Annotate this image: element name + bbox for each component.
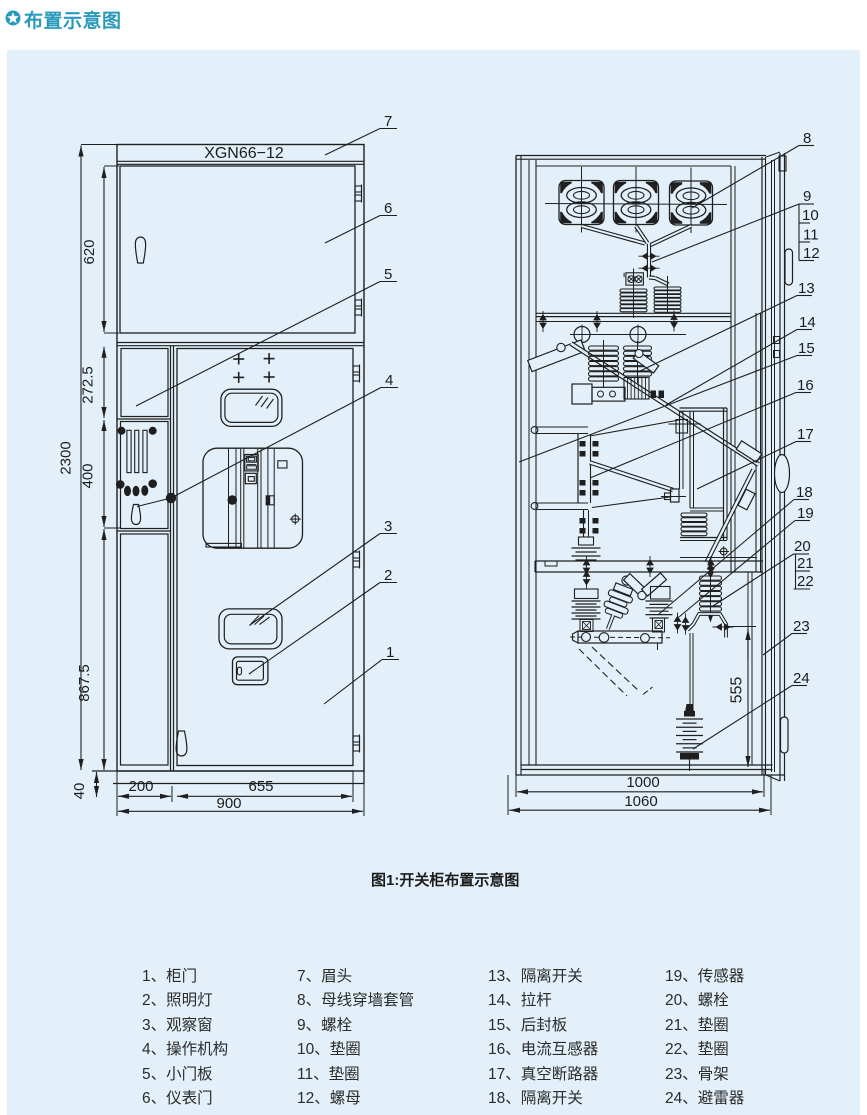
svg-text:16: 16 [797, 377, 814, 394]
svg-text:19: 19 [797, 505, 814, 522]
svg-text:13: 13 [798, 280, 815, 297]
svg-text:8: 8 [803, 130, 811, 147]
svg-text:10: 10 [802, 207, 819, 224]
svg-text:17: 17 [797, 426, 814, 443]
svg-text:655: 655 [248, 778, 273, 795]
svg-text:23: 23 [793, 618, 810, 635]
svg-text:200: 200 [128, 778, 153, 795]
svg-text:620: 620 [81, 239, 98, 264]
svg-text:2: 2 [384, 567, 392, 584]
svg-text:867.5: 867.5 [76, 664, 93, 702]
svg-text:20: 20 [794, 538, 811, 555]
svg-text:555: 555 [729, 677, 746, 704]
svg-text:11: 11 [803, 227, 819, 244]
svg-text:7: 7 [384, 113, 392, 130]
svg-text:1: 1 [386, 644, 394, 661]
svg-text:40: 40 [71, 783, 88, 800]
svg-text:400: 400 [80, 463, 97, 488]
svg-text:18: 18 [796, 484, 813, 501]
svg-text:1000: 1000 [626, 774, 659, 791]
svg-text:6: 6 [384, 200, 392, 217]
svg-text:4: 4 [385, 372, 393, 389]
svg-text:XGN66−12: XGN66−12 [204, 145, 284, 162]
svg-text:3: 3 [384, 518, 392, 535]
svg-text:22: 22 [797, 573, 814, 590]
svg-text:14: 14 [799, 314, 816, 331]
svg-text:2300: 2300 [58, 441, 75, 474]
svg-text:9: 9 [803, 188, 811, 205]
svg-text:21: 21 [797, 555, 814, 572]
svg-text:900: 900 [216, 795, 241, 812]
svg-text:5: 5 [384, 266, 392, 283]
svg-text:24: 24 [793, 670, 810, 687]
svg-text:272.5: 272.5 [80, 366, 97, 404]
svg-text:1060: 1060 [624, 793, 657, 810]
svg-text:15: 15 [798, 340, 815, 357]
svg-text:12: 12 [803, 245, 820, 262]
